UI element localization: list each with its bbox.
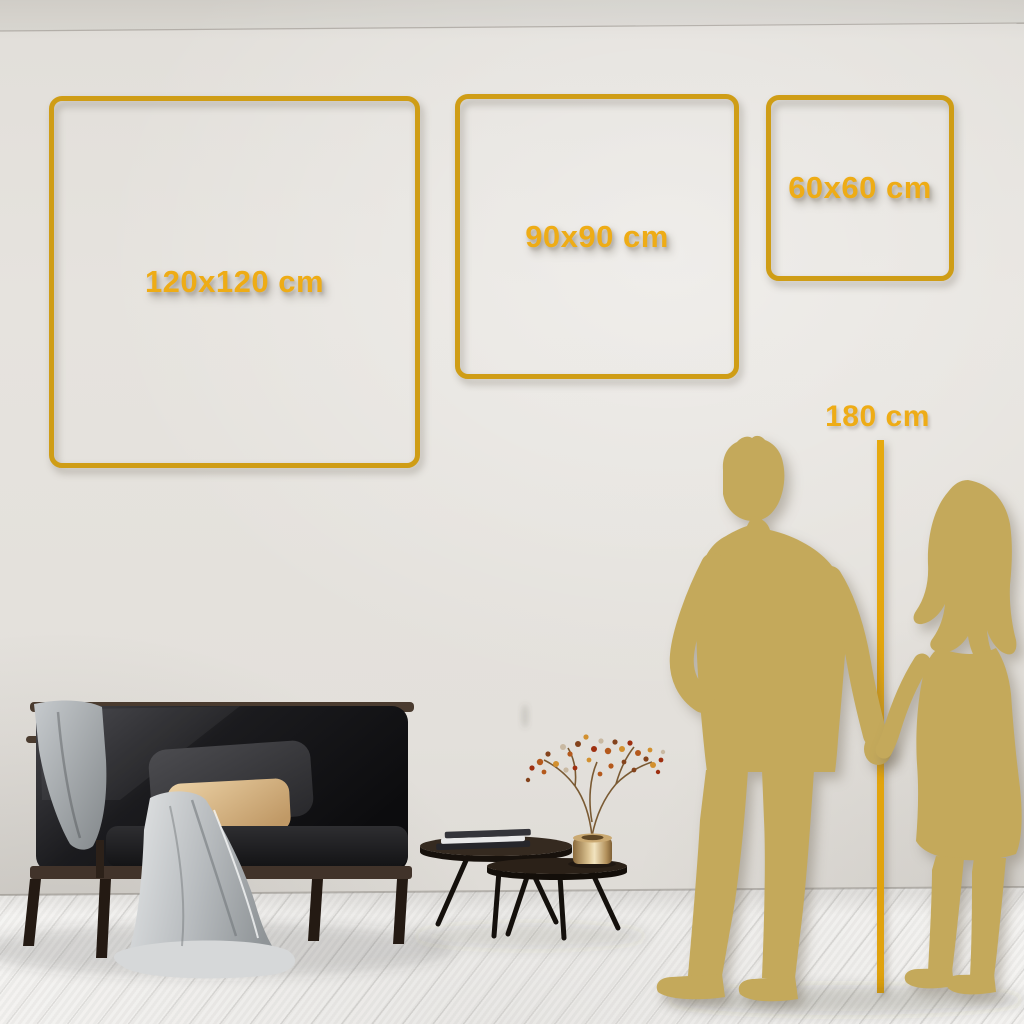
size-guide-image: 120x120 cm 90x90 cm 60x60 cm 180 cm <box>0 0 1024 1024</box>
woman-silhouette <box>884 480 1022 994</box>
couple-silhouette <box>0 0 1024 1024</box>
man-silhouette <box>657 436 892 1001</box>
